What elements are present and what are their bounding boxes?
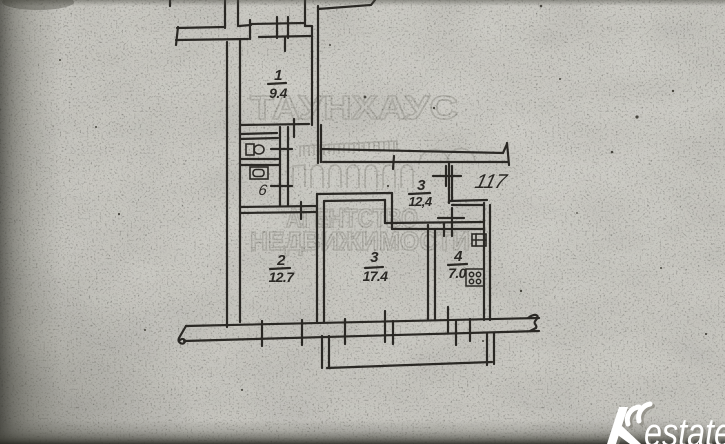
- svg-text:estate: estate: [644, 411, 725, 444]
